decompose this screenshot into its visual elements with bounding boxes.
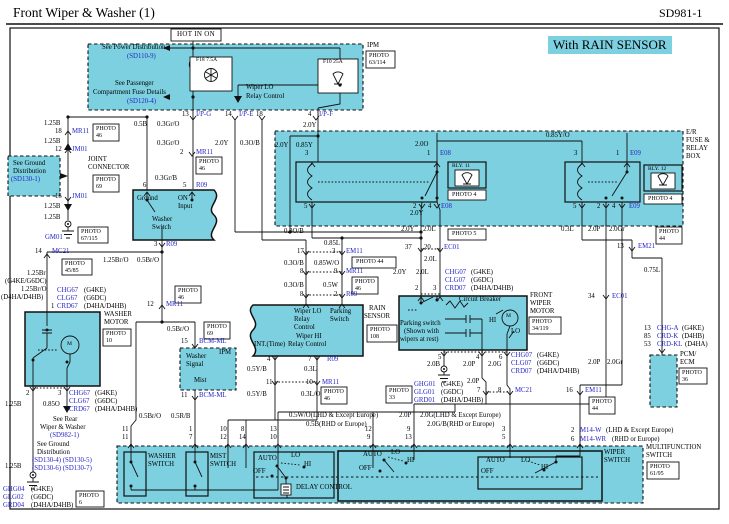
lbl-0-5br-o-86: 0.5Br/O xyxy=(167,327,189,334)
lbl-1-292: 1 xyxy=(189,427,192,434)
lbl-clg07-191: CLG07 xyxy=(445,278,465,285)
conn-mr11-9: MR11 xyxy=(346,269,363,276)
lbl-photo-4-141: PHOTO 4 xyxy=(648,196,672,202)
washer-switch-name-2: Switch xyxy=(152,225,171,232)
lbl-0-3l-159: 0.3L xyxy=(561,227,574,234)
lbl-0-5b-42: 0.5B xyxy=(134,122,147,129)
delay-control: DELAY CONTROL xyxy=(296,485,352,492)
lbl-2-0g-b-rhd-or-europe-283: 2.0G/B(RHD or Europe) xyxy=(427,422,494,429)
lbl-on-54: ON xyxy=(178,196,188,203)
lbl-crd-kl-271: CRD-KL xyxy=(657,342,682,349)
lbl-12-300: 12 xyxy=(365,427,372,434)
lbl-1-25b-103: 1.25B xyxy=(5,402,21,409)
lbl-g4ke-118: (G4KE) xyxy=(31,487,53,494)
conn-bcm-ml-11: BCM-ML xyxy=(199,393,227,400)
conn-mr11-2: MR11 xyxy=(196,150,213,157)
lbl-0-3o-b-126: 0.3O/B xyxy=(240,141,260,148)
lbl-clg67-70: CLG67 xyxy=(57,296,77,303)
conn-ipf: I/P-F xyxy=(319,112,333,119)
lbl-switch-201: Switch xyxy=(330,317,349,324)
lbl-photo-84: PHOTO xyxy=(178,288,198,294)
lbl-hi-312: HI xyxy=(304,462,311,469)
wiper-switch-label-2: SWITCH xyxy=(604,458,630,465)
lbl-10-78: 10 xyxy=(106,338,112,344)
lbl-2-284: 2 xyxy=(571,428,574,435)
lbl-g6dc-71: (G6DC) xyxy=(84,296,106,303)
ipm-top: IPM xyxy=(367,43,379,50)
lbl-13-13: 13 xyxy=(182,112,189,119)
lbl-g6dc-106: (G6DC) xyxy=(95,399,117,406)
lbl-lo-316: LO xyxy=(391,450,400,457)
lbl-14-15: 14 xyxy=(225,112,232,119)
conn-em21-13: EM21 xyxy=(638,244,655,251)
lbl-d4hb-269: (D4HB) xyxy=(682,334,704,341)
relay-11-name: RLY. 11 xyxy=(452,164,470,170)
lbl-shown-with-223: (Shown with xyxy=(404,329,439,336)
lbl-8-184: 8 xyxy=(300,292,303,299)
lbl-g4ke-69: (G4KE) xyxy=(84,288,106,295)
lbl-1-25br-o-80: 1.25Br/O xyxy=(103,258,129,265)
lbl-wiper-washer-110: Wiper & Washer xyxy=(40,425,85,432)
conn-mr11-18: MR11 xyxy=(72,129,89,136)
lbl-clg67-105: CLG67 xyxy=(69,399,89,406)
lbl-5-146: 5 xyxy=(304,204,307,211)
lbl-crd07-243: CRD07 xyxy=(511,369,532,376)
lbl-13-298: 13 xyxy=(270,427,277,434)
see-power-distribution: See Power Distribution xyxy=(102,45,165,52)
lbl-photo-11: PHOTO xyxy=(369,53,389,59)
lbl-fuse-143: FUSE & xyxy=(686,138,710,145)
lbl-3-304: 3 xyxy=(502,427,505,434)
ipm-mid: IPM xyxy=(219,350,231,357)
lbl-control-199: Control xyxy=(294,325,315,332)
washer-switch-label-2: SWITCH xyxy=(148,462,174,469)
lbl-63-114-12: 63/114 xyxy=(369,60,385,66)
lbl-8-296: 8 xyxy=(241,427,244,434)
conn-mr11-10: MR11 xyxy=(322,380,339,387)
lbl-9-302: 9 xyxy=(407,427,410,434)
lbl-clg07-241: CLG07 xyxy=(511,361,531,368)
lbl-0-3o-b-182: 0.3O/B xyxy=(284,283,304,290)
lbl-5-150: 5 xyxy=(573,204,576,211)
lbl-d4ha-272: (D4HA) xyxy=(685,342,708,349)
conn-ec01-34: EC01 xyxy=(612,294,627,301)
lbl-photo-327: PHOTO xyxy=(650,464,670,470)
ref-sd982-1: (SD982-1) xyxy=(50,433,79,440)
lbl-photo-62: PHOTO xyxy=(65,261,85,267)
lbl-off-318: OFF xyxy=(359,466,371,473)
lbl-washer-92: Washer xyxy=(186,354,206,361)
fuse-f10: F10 25A xyxy=(323,60,343,66)
lbl-hi-321: HI xyxy=(541,465,548,472)
lbl-photo-44-170: PHOTO 44 xyxy=(356,259,383,265)
lbl-input-55: Input xyxy=(178,204,192,211)
lbl-crd67-73: CRD67 xyxy=(57,304,78,311)
fuse-f18: F18 7.5A xyxy=(196,58,217,64)
lbl-rhd-or-europe-289: (RHD or Europe) xyxy=(612,437,660,444)
lbl-lo-311: LO xyxy=(291,453,300,460)
lbl-crd07-195: CRD07 xyxy=(445,286,466,293)
lbl-2-0y-156: 2.0Y xyxy=(401,227,414,234)
lbl-13-303: 13 xyxy=(405,435,412,442)
lbl-8-177: 8 xyxy=(300,269,303,276)
relay-12-name: RLY. 12 xyxy=(648,167,666,173)
lbl-69-34: 69 xyxy=(96,184,102,190)
lbl-12-82: 12 xyxy=(147,302,154,309)
lbl-18-17: 18 xyxy=(256,112,263,119)
conn-ipg: I/P-G xyxy=(196,112,211,119)
lbl-14-297: 14 xyxy=(239,435,246,442)
lbl-0-5br-o-97: 0.5Br/O xyxy=(139,414,161,421)
lbl-6-124: 6 xyxy=(79,500,82,506)
lbl-0-5b-rhd-or-europe-280: 0.5B(RHD or Europe) xyxy=(306,422,367,429)
lbl-0-3gr-o-44: 0.3Gr/O xyxy=(157,141,179,148)
lbl-e-r-142: E/R xyxy=(686,130,697,137)
lbl-d4ha-d4hb-122: (D4HA/D4HB) xyxy=(31,503,73,510)
conn-mc21-14: MC21 xyxy=(52,249,69,256)
lbl-photo-33: PHOTO xyxy=(96,177,116,183)
lbl-2-193: 2 xyxy=(415,286,418,293)
lbl-2-151: 2 xyxy=(597,204,600,211)
lbl-photo-47: PHOTO xyxy=(199,159,219,165)
front-wiper-motor-3: MOTOR xyxy=(530,309,554,316)
lbl-1-136: 1 xyxy=(616,151,619,158)
lbl-photo-207: PHOTO xyxy=(370,327,390,333)
conn-e09-1: E09 xyxy=(630,151,641,158)
conn-m14-w: M14-W xyxy=(580,428,602,435)
see-passenger-2: Compartment Fuse Details xyxy=(93,90,166,97)
lbl-g6dc-251: (G6DC) xyxy=(441,390,463,397)
lbl-3-168: 3 xyxy=(332,249,335,256)
lbl-g4ke-237: (G4KE) xyxy=(537,353,559,360)
lbl-10-294: 10 xyxy=(220,427,227,434)
lbl-photo-87: PHOTO xyxy=(207,324,227,330)
pcm-ecm-2: ECM xyxy=(680,360,695,367)
lbl-relay-198: Relay xyxy=(294,317,310,324)
lbl-wiper-hi-202: Wiper HI xyxy=(296,334,322,341)
lbl-ghg01-248: GHG01 xyxy=(414,382,436,389)
lbl-1-72: 1 xyxy=(51,304,54,311)
lbl-grd04-121: GRD04 xyxy=(3,503,24,510)
lbl-1-25br-o-66: 1.25Br/O xyxy=(21,287,47,294)
lbl-15-35: 15 xyxy=(55,194,62,201)
lbl-10-215: 10 xyxy=(306,380,313,387)
lbl-11-291: 11 xyxy=(122,435,129,442)
lbl-auto-310: AUTO xyxy=(258,456,277,463)
lbl-g4ke-g6dc-65: (G4KE/G6DC) xyxy=(5,279,47,286)
lbl-9-301: 9 xyxy=(367,435,370,442)
lbl-int-time-204: INT.(Time) xyxy=(254,342,285,349)
multifunction-switch-1: MULTIFUNCTION xyxy=(646,445,701,452)
lbl-6-287: 6 xyxy=(571,437,574,444)
lbl-2-0l-188: 2.0L xyxy=(416,270,429,277)
lbl-0-85y-129: 0.85Y xyxy=(296,143,313,150)
lbl-1-25b-37: 1.25B xyxy=(44,204,60,211)
lbl-d4ha-d4hb-67: (D4HA/D4HB) xyxy=(1,295,43,302)
lbl-44-260: 44 xyxy=(592,406,598,412)
lbl-37-171: 37 xyxy=(405,245,412,252)
lbl-2-45: 2 xyxy=(180,150,183,157)
lbl-0-3gr-o-43: 0.3Gr/O xyxy=(157,122,179,129)
lbl-g6dc-120: (G6DC) xyxy=(31,495,53,502)
lbl-9-178: 9 xyxy=(334,269,337,276)
lbl-44-165: 44 xyxy=(659,236,665,242)
lbl-34-119-232: 34/119 xyxy=(532,326,548,332)
lbl-2-0p-281: 2.0P xyxy=(399,413,411,420)
lbl-0-75l-261: 0.75L xyxy=(644,268,660,275)
lbl-14-60: 14 xyxy=(35,249,42,256)
lbl-lo-320: LO xyxy=(521,458,530,465)
lbl-wiper-lo-197: Wiper LO xyxy=(294,309,321,316)
wiper-lo-relay-ctl-2: Relay Control xyxy=(246,94,284,101)
conn-r09-7: R09 xyxy=(327,357,338,364)
lbl-off-313: OFF xyxy=(253,469,265,476)
lbl-1-132: 1 xyxy=(427,151,430,158)
conn-mr11-12: MR11 xyxy=(166,302,183,309)
washer-motor-box xyxy=(25,312,100,386)
lbl-photo-40: PHOTO xyxy=(81,229,101,235)
conn-em11-16: EM11 xyxy=(585,388,602,395)
lbl-3-131: 3 xyxy=(305,151,308,158)
washer-motor-name-1: WASHER xyxy=(104,312,132,319)
lbl-46-85: 46 xyxy=(178,295,184,301)
lbl-3-194: 3 xyxy=(433,286,436,293)
lbl-46-218: 46 xyxy=(324,396,330,402)
lbl-photo-231: PHOTO xyxy=(532,319,552,325)
rain-sensor-name-1: RAIN xyxy=(369,306,386,313)
lbl-photo-123: PHOTO xyxy=(79,493,99,499)
lbl-2-0y-125: 2.0Y xyxy=(215,141,228,148)
conn-bcm-ml-15: BCM-ML xyxy=(199,339,227,346)
lbl-see-rear-109: See Rear xyxy=(53,417,77,424)
lbl-off-322: OFF xyxy=(481,469,493,476)
lbl-mist-94: Mist xyxy=(194,378,206,385)
lbl-5-51: 5 xyxy=(183,183,186,190)
lbl-1-25br-64: 1.25Br xyxy=(27,271,46,278)
lbl-3-100: 3 xyxy=(58,391,61,398)
lbl-8-255: 8 xyxy=(498,388,501,395)
lbl-13-264: 13 xyxy=(644,326,651,333)
lbl-2-0p-160: 2.0P xyxy=(588,227,600,234)
lbl-chg07-236: CHG07 xyxy=(511,353,532,360)
lbl-sd130-6-sd130-7-115: (SD130-6) (SD130-7) xyxy=(32,466,92,473)
lbl-2-99: 2 xyxy=(26,391,29,398)
lbl-0-5y-b-219: 0.5Y/B xyxy=(247,392,267,399)
lbl-67-115-41: 67/115 xyxy=(81,236,97,242)
lbl-7-210: 7 xyxy=(308,357,311,364)
lbl-2-0l-157: 2.0L xyxy=(423,227,436,234)
lbl-2-0y-128: 2.0Y xyxy=(275,143,288,150)
mist-switch-label-1: MIST xyxy=(210,454,226,461)
multifunction-switch-2: SWITCH xyxy=(646,453,672,460)
conn-jm01-12: JM01 xyxy=(72,147,88,154)
lbl-4-234: 4 xyxy=(476,355,479,362)
lbl-2-0y-127: 2.0Y xyxy=(303,123,316,130)
lbl-53-270: 53 xyxy=(644,342,651,349)
lbl-2-0o-130: 2.0O xyxy=(415,142,428,149)
mist-switch-label-2: SWITCH xyxy=(210,462,236,469)
ref-sd110-9: (SD110-9) xyxy=(127,54,156,61)
washer-motor-name-2: MOTOR xyxy=(104,320,128,327)
lbl-2-0b-238: 2.0B xyxy=(427,362,440,369)
lbl-d4ha-d4hb-196: (D4HA/D4HB) xyxy=(471,286,513,293)
lbl-4-209: 4 xyxy=(267,357,270,364)
lbl-lhd-except-europe-286: (LHD & Except Europe) xyxy=(606,428,673,435)
lbl-auto-319: AUTO xyxy=(486,458,505,465)
lbl-33-247: 33 xyxy=(389,395,395,401)
lbl-joint-31: JOINT xyxy=(88,157,107,164)
lbl-chg07-189: CHG07 xyxy=(445,270,466,277)
lbl-crd-k-268: CRD-K xyxy=(657,334,678,341)
lbl-2-0p-245: 2.0P xyxy=(467,379,479,386)
ref-sd120-4: (SD120-4) xyxy=(127,99,156,106)
lbl-signal-93: Signal xyxy=(186,362,203,369)
pcm-ecm-1: PCM/ xyxy=(680,352,696,359)
lbl-34-262: 34 xyxy=(588,294,595,301)
lbl-glg01-250: GLG01 xyxy=(414,390,435,397)
rain-sensor-name-2: SENSOR xyxy=(364,314,390,321)
lbl-0-85w-o-175: 0.85W/O xyxy=(314,261,339,268)
lbl-photo-77: PHOTO xyxy=(106,331,126,337)
lbl-wipers-at-rest-224: wipers at rest) xyxy=(400,337,439,344)
lbl-crd67-107: CRD67 xyxy=(69,407,90,414)
lbl-11-95: 11 xyxy=(181,393,188,400)
lbl-0-5w-o-lhd-except-europe-279: 0.5W/O(LHD & Except Europe) xyxy=(289,413,378,420)
lbl-0-5r-b-98: 0.5R/B xyxy=(171,414,190,421)
lbl-chg-a-265: CHG-A xyxy=(657,326,679,333)
lbl-6-50: 6 xyxy=(143,183,146,190)
lbl-45-85-63: 45/85 xyxy=(65,268,79,274)
hot-in-on: HOT IN ON xyxy=(177,31,215,38)
lbl-chg67-101: CHG67 xyxy=(69,391,90,398)
lbl-glg02-119: GLG02 xyxy=(3,495,24,502)
washer-motor-m: M xyxy=(67,342,72,348)
wiper-lo-relay-ctl-1: Wiper LO xyxy=(246,85,273,92)
lbl-3-135: 3 xyxy=(574,151,577,158)
lbl-61-95-328: 61/95 xyxy=(650,471,664,477)
lbl-4-18: 4 xyxy=(308,112,311,119)
lbl-12-26: 12 xyxy=(55,147,62,154)
conn-e08-4: E08 xyxy=(441,204,452,211)
lbl-0-3o-b-174: 0.3O/B xyxy=(284,261,304,268)
lbl-distribution-29: Distribution xyxy=(13,169,46,176)
lbl-13-162: 13 xyxy=(617,244,624,251)
lbl-grd01-252: GRD01 xyxy=(414,398,435,405)
lbl-46-48: 46 xyxy=(199,166,205,172)
lbl-1-25b-38: 1.25B xyxy=(44,215,60,222)
lbl-5-305: 5 xyxy=(502,435,505,442)
pcm-ecm-box xyxy=(650,355,677,407)
lbl-parking-switch-222: Parking switch xyxy=(400,321,441,328)
lbl-7-293: 7 xyxy=(189,435,192,442)
wiring-diagram-page: Front Wiper & Washer (1) SD981-1 With RA… xyxy=(0,0,729,524)
lbl-2-185: 2 xyxy=(334,292,337,299)
lbl-12-295: 12 xyxy=(220,435,227,442)
lbl-0-3l-o-220: 0.3L/O xyxy=(301,392,320,399)
wiper-switch-label-1: WIPER xyxy=(604,450,625,457)
lbl-hi-226: HI xyxy=(489,318,496,325)
lbl-2-0gr-161: 2.0Gr xyxy=(609,227,625,234)
lbl-d4ha-d4hb-74: (D4HA/D4HB) xyxy=(84,304,126,311)
lbl-ground-53: Ground xyxy=(137,196,158,203)
lbl-relay-control-203: Relay Control xyxy=(288,342,326,349)
lbl-4-152: 4 xyxy=(612,204,615,211)
lbl-photo-217: PHOTO xyxy=(324,389,344,395)
conn-e09-4: E09 xyxy=(629,204,640,211)
lbl-ghg04-117: GHG04 xyxy=(3,487,25,494)
lbl-0-85l-166: 0.85L xyxy=(324,241,340,248)
conn-e08-1: E08 xyxy=(440,151,451,158)
lbl-0-3o-b-155: 0.3O/B xyxy=(284,229,304,236)
lbl-2-0g-240: 2.0G xyxy=(488,362,501,369)
lbl-0-3gr-b-49: 0.3Gr/B xyxy=(155,176,177,183)
front-wiper-motor-2: WIPER xyxy=(530,301,551,308)
lbl-photo-180: PHOTO xyxy=(355,279,375,285)
front-wiper-motor-1: FRONT xyxy=(530,293,552,300)
lbl-11-290: 11 xyxy=(122,427,129,434)
lbl-2-0p-277: 2.0P xyxy=(588,360,600,367)
lbl-4-148: 4 xyxy=(428,204,431,211)
lbl-box-145: BOX xyxy=(686,154,700,161)
lbl-10-299: 10 xyxy=(270,435,277,442)
lbl-photo-5-158: PHOTO 5 xyxy=(452,231,476,237)
lbl-photo-164: PHOTO xyxy=(659,229,679,235)
ground-gm01: GM01 xyxy=(45,235,63,242)
lbl-chg67-68: CHG67 xyxy=(57,288,78,295)
see-passenger-1: See Passenger xyxy=(115,81,154,88)
front-motor-m: M xyxy=(506,314,511,320)
lbl-g4ke-190: (G4KE) xyxy=(471,270,493,277)
lbl-d4ha-d4hb-108: (D4HA/D4HB) xyxy=(95,407,137,414)
lbl-0-5y-b-212: 0.5Y/B xyxy=(247,367,267,374)
lbl-18-21: 18 xyxy=(55,129,62,136)
washer-switch-label-1: WASHER xyxy=(148,454,176,461)
ground-symbol-gm01 xyxy=(62,221,74,238)
lbl-0-3l-213: 0.3L xyxy=(304,367,317,374)
conn-em11-3: EM11 xyxy=(346,249,363,256)
conn-mc21-8: MC21 xyxy=(515,388,532,395)
lbl-1-25b-20: 1.25B xyxy=(44,121,60,128)
conn-ec01-20: EC01 xyxy=(444,245,459,252)
lbl-2-0y-187: 2.0Y xyxy=(393,270,406,277)
lbl-2-0g-lhd-except-europe-282: 2.0G(LHD & Except Europe) xyxy=(420,413,501,420)
lbl-see-ground-112: See Ground xyxy=(37,442,69,449)
lbl-photo-246: PHOTO xyxy=(389,388,409,394)
lbl-g6dc-242: (G6DC) xyxy=(537,361,559,368)
lbl-36-276: 36 xyxy=(682,377,688,383)
lbl-2-0y-154: 2.0Y xyxy=(410,211,423,218)
lbl-auto-315: AUTO xyxy=(363,452,382,459)
lbl-photo-259: PHOTO xyxy=(592,399,612,405)
lbl-connector-32: CONNECTOR xyxy=(88,165,129,172)
lbl-1-25b-116: 1.25B xyxy=(5,464,21,471)
conn-ipe: I/P-E xyxy=(239,112,253,119)
lbl-photo-23: PHOTO xyxy=(96,126,116,132)
lbl-parking-200: Parking xyxy=(330,309,351,316)
lbl-d4ha-d4hb-253: (D4HA/D4HB) xyxy=(441,398,483,405)
lbl-relay-144: RELAY xyxy=(686,146,708,153)
lbl-46-24: 46 xyxy=(96,133,102,139)
lbl-circuit-breaker-221: Circuit Breaker xyxy=(459,297,501,304)
lbl-85-267: 85 xyxy=(644,334,651,341)
lbl-g4ke-266: (G4KE) xyxy=(682,326,704,333)
ref-sd130-1: (SD130-1) xyxy=(11,177,40,184)
lbl-sd130-4-sd130-5-114: (SD130-4) (SD130-5) xyxy=(32,458,92,465)
lbl-lo-227: LO xyxy=(511,329,520,336)
lbl-2-0gr-278: 2.0Gr xyxy=(607,360,623,367)
conn-jm01-15: JM01 xyxy=(72,194,88,201)
conn-m14-wr: M14-WR xyxy=(580,437,606,444)
